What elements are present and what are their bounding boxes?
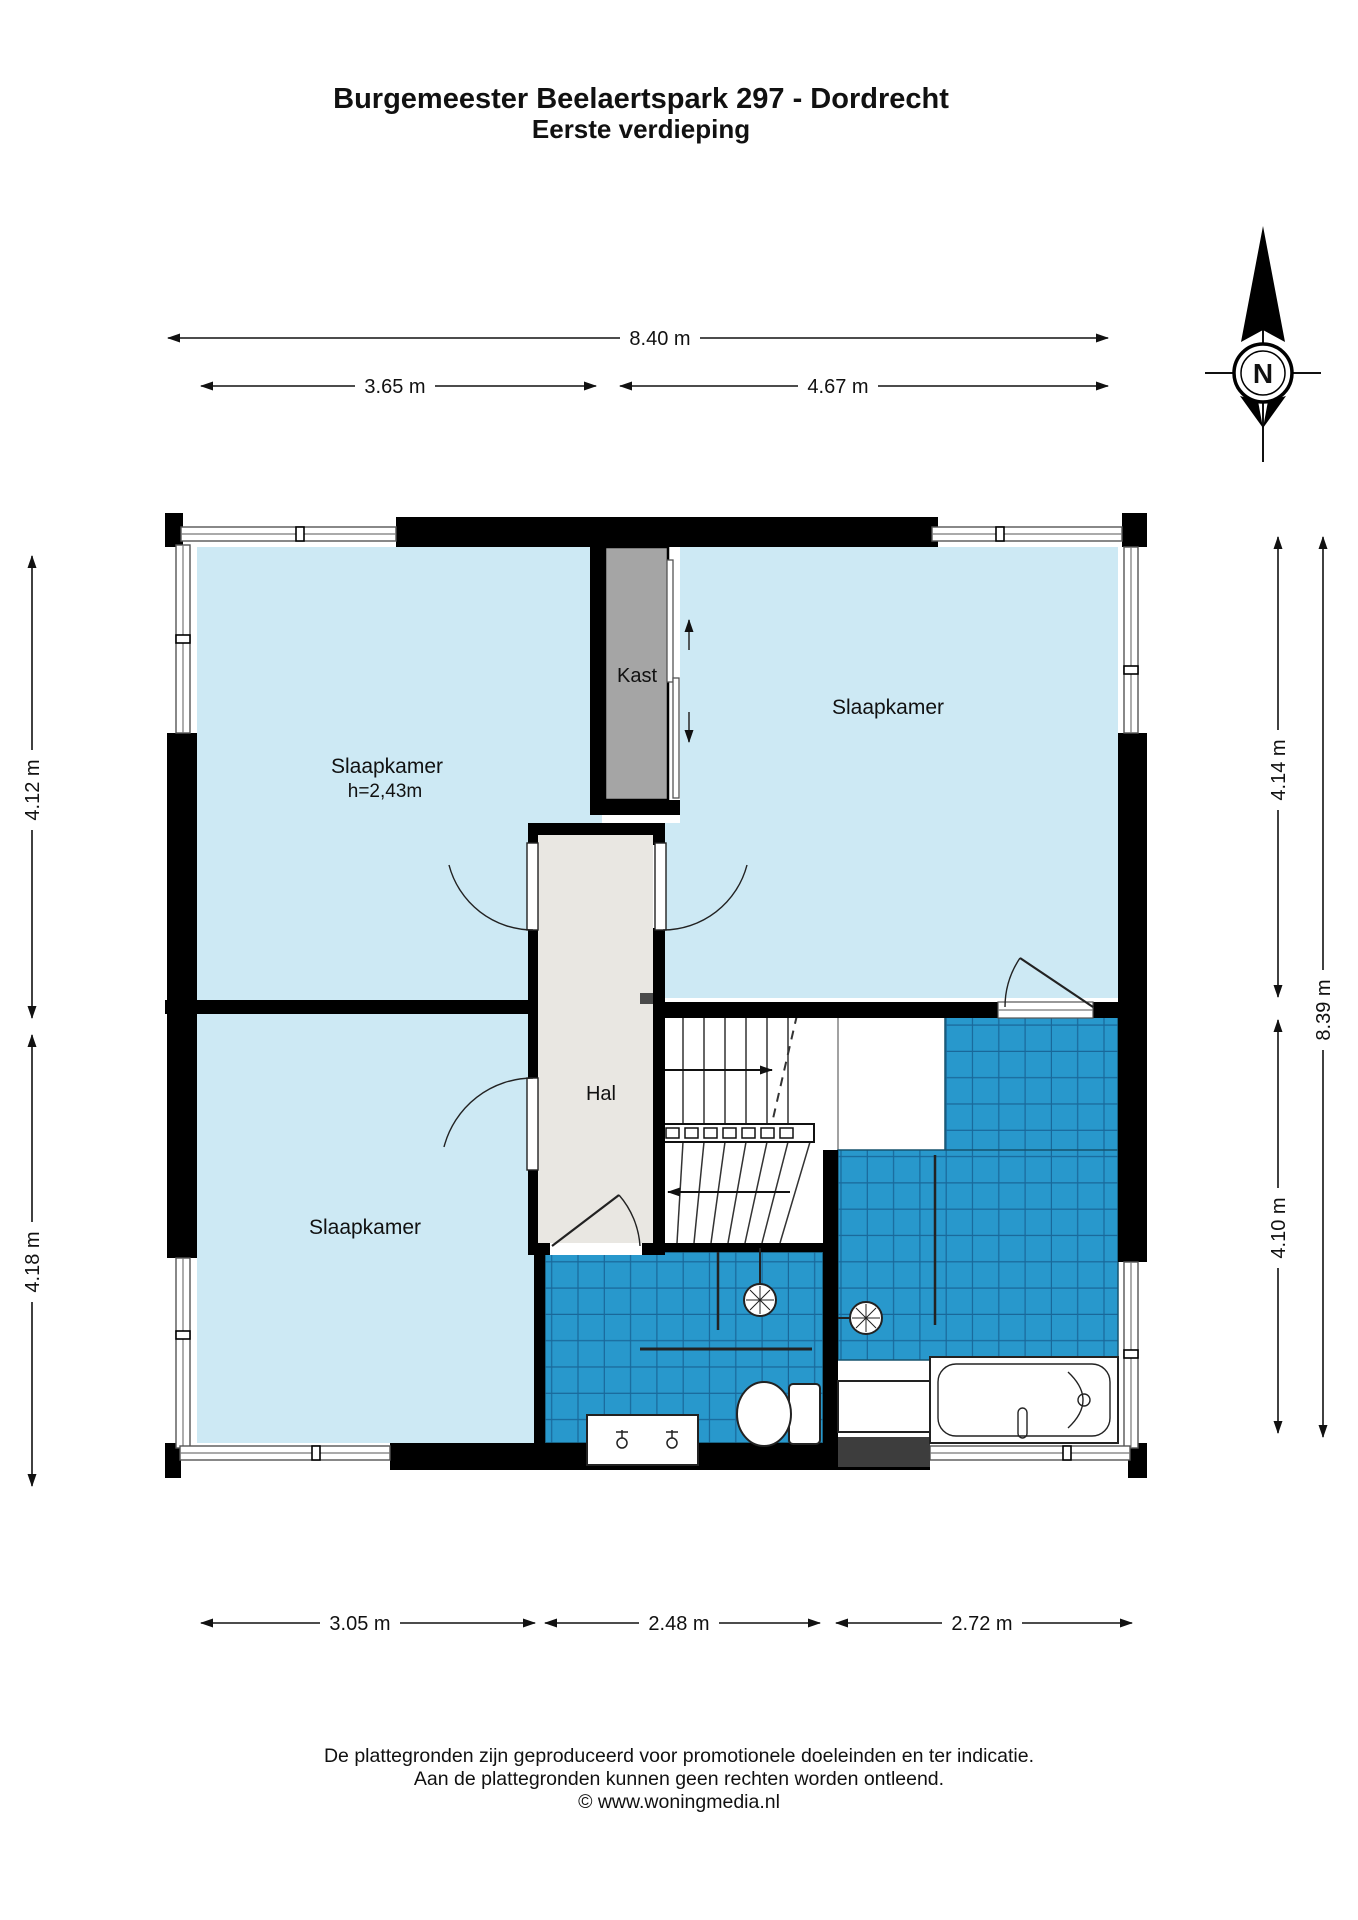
wall-bathroom-divider [823,1150,838,1443]
wall-corner-top-right [1122,513,1147,547]
window-top-right [932,527,1122,541]
dim-bottom-middle-label: 2.48 m [648,1613,709,1635]
hall-floor [538,835,653,1243]
hall-label: Hal [586,1083,616,1105]
footer-disclaimer: De plattegronden zijn geproduceerd voor … [324,1745,1034,1813]
wall-hall-left-c [528,1160,538,1255]
dim-right-upper-label: 4.14 m [1268,739,1290,800]
floor-plan-canvas: Burgemeester Beelaertspark 297 - Dordrec… [0,0,1358,1920]
stair-balustrade [656,1124,814,1142]
compass-north-needle [1241,226,1285,342]
wall-right-bedroom-bottom-b [1093,1002,1118,1018]
dim-top-total-label: 8.40 m [629,328,690,350]
dim-left-upper-label: 4.12 m [22,759,44,820]
bedroom-top-left-label: Slaapkamer [331,755,443,778]
dim-top-left-label: 3.65 m [364,376,425,398]
window-bottom-right [930,1446,1130,1460]
wall-closet-left [590,517,605,815]
footer-line3: © www.woningmedia.nl [578,1791,780,1813]
window-left-lower [176,1258,190,1448]
wall-left [167,733,197,1258]
toilet [737,1382,820,1446]
wall-left-bedrooms-divider [165,1000,538,1014]
window-left-upper [176,545,190,733]
wall-post [640,993,653,1004]
wall-hall-right-b [653,928,665,1243]
closet-label: Kast [617,665,657,687]
window-bottom-left [180,1446,390,1460]
window-right-lower [1124,1262,1138,1448]
wall-right [1118,733,1147,1262]
washbasin-double [587,1415,698,1465]
wall-top [396,517,938,547]
window-top-left [181,527,396,541]
compass-north-label: N [1253,358,1273,389]
dim-bottom-left-label: 3.05 m [329,1613,390,1635]
page-title: Burgemeester Beelaertspark 297 - Dordrec… [333,83,949,144]
wall-bedroom-bath-divider [534,1243,545,1443]
stair-landing [838,1015,945,1150]
bedroom-top-right-floor [605,547,1118,998]
footer-line2: Aan de plattegronden kunnen geen rechten… [414,1768,944,1790]
bathroom-dark-cabinet [838,1437,930,1467]
compass-icon: N [1205,226,1321,462]
title-line1: Burgemeester Beelaertspark 297 - Dordrec… [333,83,949,115]
wall-right-bedroom-bottom-a [653,1002,998,1018]
wall-hall-top [528,823,665,835]
title-line2: Eerste verdieping [532,114,750,144]
footer-line1: De plattegronden zijn geproduceerd voor … [324,1745,1034,1767]
dim-right-total-label: 8.39 m [1313,979,1335,1040]
dim-top-right-label: 4.67 m [807,376,868,398]
dim-left-lower-label: 4.18 m [22,1231,44,1292]
bedroom-bottom-left-label: Slaapkamer [309,1216,421,1239]
wall-closet-bottom [590,800,680,815]
bathroom-right-tiles-lower [838,1150,1118,1360]
bathroom-counter [838,1381,930,1432]
window-right-upper [1124,547,1138,733]
dim-right-lower-label: 4.10 m [1268,1197,1290,1258]
bathroom-right-tiles-upper [945,1015,1118,1155]
bedroom-top-left-height-label: h=2,43m [348,781,422,802]
dim-bottom-right-label: 2.72 m [951,1613,1012,1635]
wall-stairwell-bottom [653,1243,838,1252]
bathtub [930,1357,1118,1443]
bedroom-top-right-label: Slaapkamer [832,696,944,719]
